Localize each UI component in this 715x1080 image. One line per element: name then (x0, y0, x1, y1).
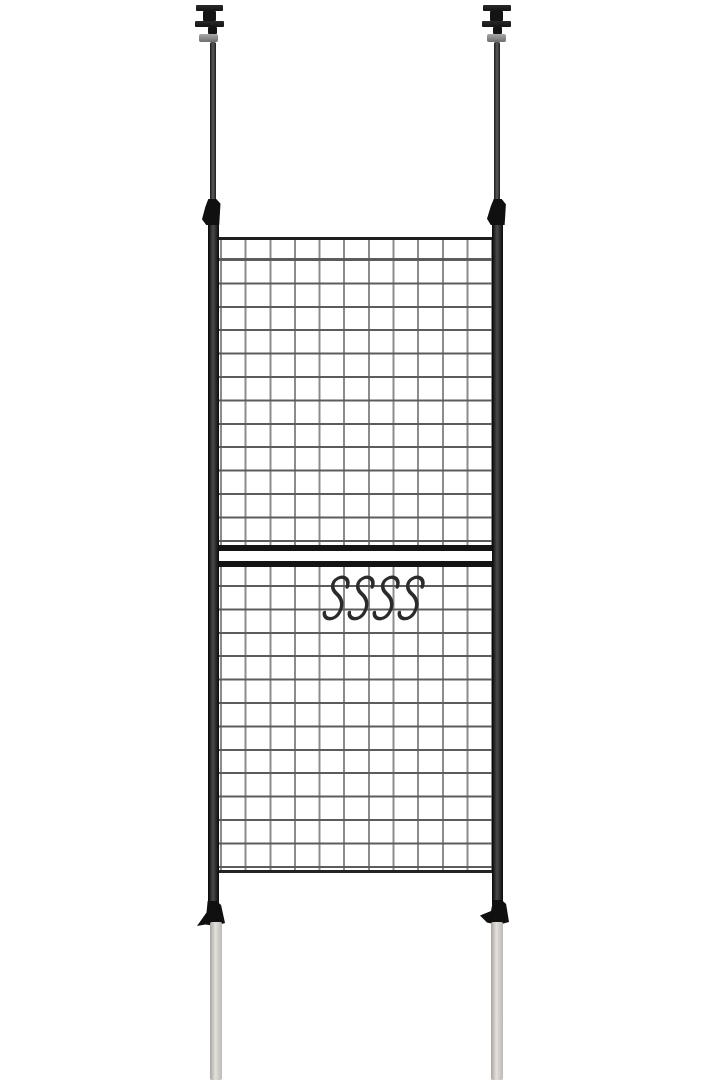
left-upper-tension-rod (210, 42, 216, 202)
left-ceiling-mount-collar (199, 34, 218, 42)
left-ceiling-mount-block (203, 11, 216, 21)
right-ceiling-mount-collar (487, 34, 506, 42)
right-floor-pole (491, 922, 503, 1080)
right-main-pole (492, 214, 503, 906)
right-ceiling-mount-neck (493, 27, 502, 34)
right-upper-tension-rod (494, 42, 500, 202)
left-main-pole (208, 214, 219, 906)
left-upper-clamp (202, 199, 223, 225)
s-hook (398, 577, 424, 618)
right-upper-clamp (487, 199, 508, 225)
product-photo (0, 0, 715, 1080)
s-hook (348, 577, 374, 618)
wire-grid-panel-upper (219, 237, 493, 551)
left-floor-pole (210, 922, 222, 1080)
s-hook (323, 577, 349, 618)
s-hooks-svg (320, 571, 430, 629)
right-ceiling-mount-block (490, 11, 503, 21)
s-hook (373, 577, 399, 618)
left-ceiling-mount-neck (208, 27, 217, 34)
